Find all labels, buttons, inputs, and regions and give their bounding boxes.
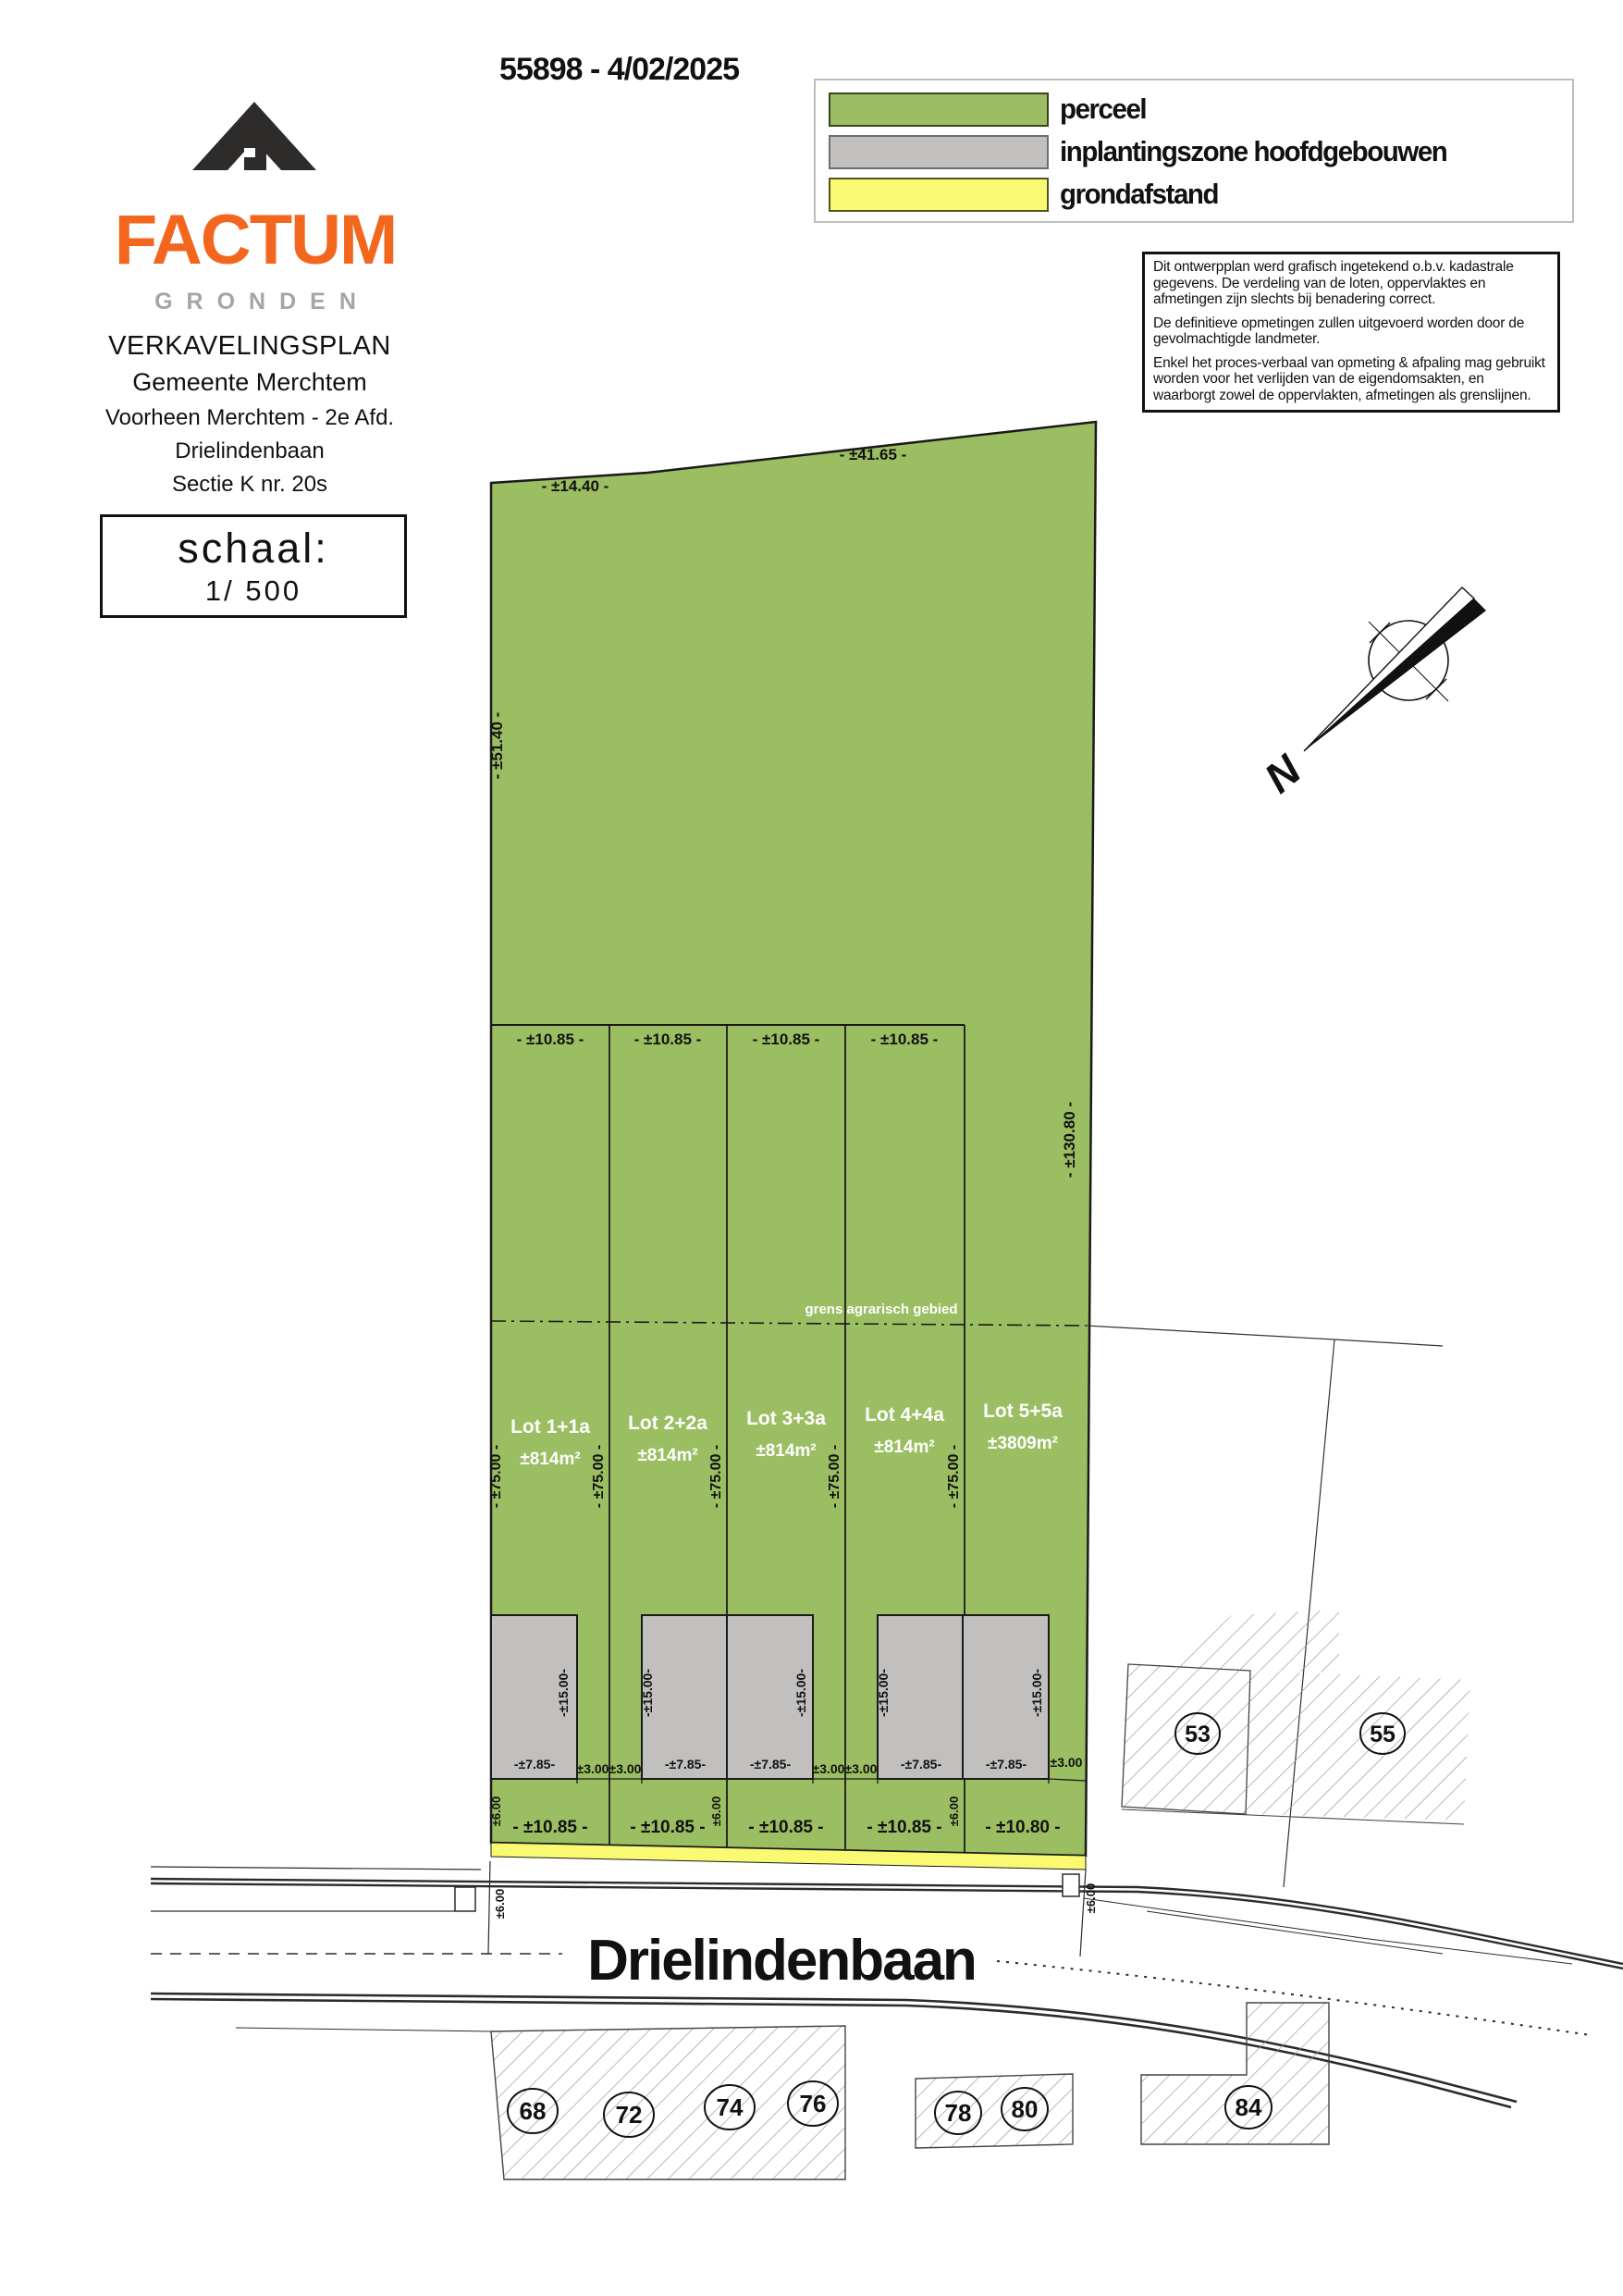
road-width-left: ±6.00 xyxy=(493,1889,507,1919)
zone5-depth: -±15.00- xyxy=(1029,1669,1044,1717)
lot2-area: ±814m² xyxy=(637,1446,697,1465)
neighbor-53: 53 xyxy=(1185,1722,1211,1747)
house-80: 80 xyxy=(1012,2095,1039,2123)
site-plan: grens agrarisch gebied - ±14.40 - - ±41.… xyxy=(0,0,1623,2296)
zone2-width: -±7.85- xyxy=(665,1757,707,1771)
house-72: 72 xyxy=(616,2101,643,2129)
zone4-depth: -±15.00- xyxy=(876,1669,891,1717)
dim-top-right: - ±41.65 - xyxy=(840,446,907,463)
lot2-name: Lot 2+2a xyxy=(628,1413,707,1434)
lot4-name: Lot 4+4a xyxy=(865,1404,944,1426)
zone1-depth: -±15.00- xyxy=(556,1669,571,1717)
lot1-area: ±814m² xyxy=(520,1450,580,1469)
dim-lot5-front: - ±10.80 - xyxy=(985,1818,1060,1837)
street-name: Drielindenbaan xyxy=(587,1929,976,1993)
house-76: 76 xyxy=(800,2090,827,2117)
dim-lot1-top-width: - ±10.85 - xyxy=(517,1031,584,1048)
building-55 xyxy=(1246,1671,1470,1821)
house-78: 78 xyxy=(945,2099,972,2127)
front-gap-3: ±6.00 xyxy=(947,1796,961,1826)
dim-depth-3: - ±75.00 - xyxy=(708,1445,724,1508)
dim-left-upper: - ±51.40 - xyxy=(488,712,506,780)
gap-5: ±3.00 xyxy=(1051,1755,1083,1770)
dim-depth-5: - ±75.00 - xyxy=(946,1445,962,1508)
dim-lot1-front: - ±10.85 - xyxy=(512,1818,587,1837)
dim-top-left: - ±14.40 - xyxy=(542,477,609,495)
zone3-width: -±7.85- xyxy=(750,1757,792,1771)
house-68: 68 xyxy=(520,2097,547,2125)
zone1-width: -±7.85- xyxy=(514,1757,556,1771)
zone3-depth: -±15.00- xyxy=(793,1669,808,1717)
zone5-width: -±7.85- xyxy=(986,1757,1027,1771)
dim-right-full: - ±130.80 - xyxy=(1061,1102,1078,1178)
dim-lot3-top-width: - ±10.85 - xyxy=(753,1031,820,1048)
building-55-spill xyxy=(1174,1610,1339,1673)
neighbor-boundary-top2 xyxy=(1334,1339,1443,1346)
building-78-80 xyxy=(916,2074,1073,2148)
lot3-area: ±814m² xyxy=(756,1441,816,1461)
dim-lot2-front: - ±10.85 - xyxy=(630,1818,705,1837)
gap-2: ±3.00 xyxy=(609,1761,642,1776)
road-width-right: ±6.00 xyxy=(1084,1883,1098,1913)
zone4-width: -±7.85- xyxy=(901,1757,942,1771)
dim-depth-1: - ±75.00 - xyxy=(488,1445,504,1508)
dim-lot4-top-width: - ±10.85 - xyxy=(871,1031,939,1048)
dim-depth-2: - ±75.00 - xyxy=(591,1445,607,1508)
lot3-name: Lot 3+3a xyxy=(746,1408,826,1429)
lot5-area: ±3809m² xyxy=(988,1434,1058,1453)
house-74: 74 xyxy=(717,2093,744,2121)
agrarian-boundary-label: grens agrarisch gebied xyxy=(805,1302,957,1317)
neighbor-boundary-top xyxy=(1086,1326,1334,1339)
house-84: 84 xyxy=(1236,2093,1262,2121)
neighbor-55: 55 xyxy=(1370,1722,1396,1747)
lot5-name: Lot 5+5a xyxy=(983,1401,1063,1422)
dim-lot4-front: - ±10.85 - xyxy=(867,1818,941,1837)
zone2-depth: -±15.00- xyxy=(640,1669,655,1717)
gap-1: ±3.00 xyxy=(577,1761,609,1776)
dim-depth-4: - ±75.00 - xyxy=(827,1445,842,1508)
lot4-area: ±814m² xyxy=(874,1438,934,1457)
road-marker-right xyxy=(1063,1874,1079,1896)
dim-lot2-top-width: - ±10.85 - xyxy=(634,1031,702,1048)
road-marker-left xyxy=(455,1887,475,1911)
gap-3: ±3.00 xyxy=(813,1761,845,1776)
front-gap-1: ±6.00 xyxy=(489,1796,503,1826)
north-arrow xyxy=(1304,587,1486,751)
gap-4: ±3.00 xyxy=(845,1761,878,1776)
front-gap-2: ±6.00 xyxy=(709,1796,723,1826)
north-label: N xyxy=(1255,745,1309,802)
dim-lot3-front: - ±10.85 - xyxy=(748,1818,823,1837)
lot1-name: Lot 1+1a xyxy=(510,1416,590,1438)
